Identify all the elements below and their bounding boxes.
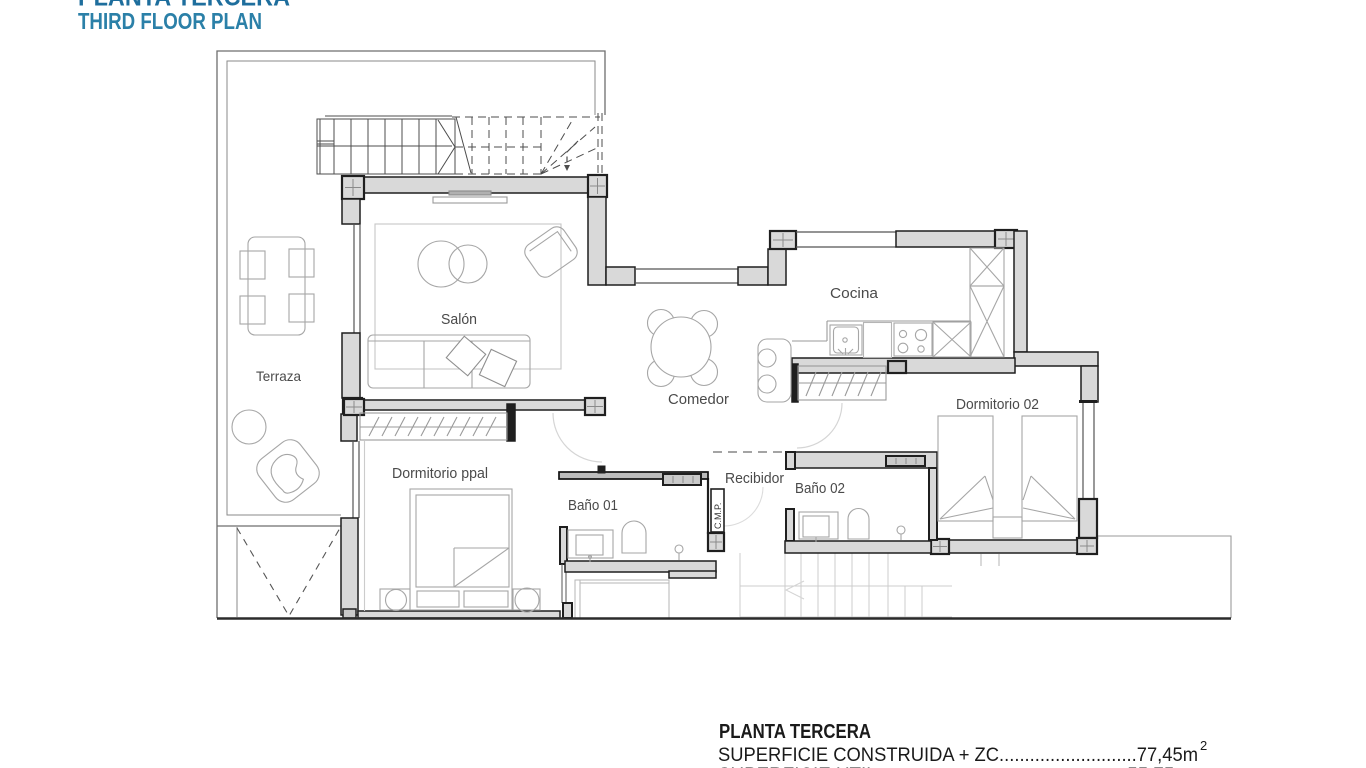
- svg-text:THIRD FLOOR PLAN: THIRD FLOOR PLAN: [78, 8, 262, 34]
- svg-text:2: 2: [1200, 738, 1207, 753]
- svg-text:Dormitorio 02: Dormitorio 02: [956, 396, 1039, 413]
- svg-text:C.M.P.: C.M.P.: [713, 503, 723, 529]
- svg-text:Baño 01: Baño 01: [568, 498, 618, 514]
- svg-text:SUPERFICIE CONSTRUIDA + ZC....: SUPERFICIE CONSTRUIDA + ZC..............…: [718, 744, 1198, 766]
- svg-text:Dormitorio ppal: Dormitorio ppal: [392, 465, 488, 482]
- svg-text:Salón: Salón: [441, 312, 477, 328]
- svg-text:PLANTA TERCERA: PLANTA TERCERA: [719, 721, 871, 743]
- svg-text:Cocina: Cocina: [830, 285, 879, 302]
- svg-text:SUPERFICIE UTIL...............: SUPERFICIE UTIL.........................…: [718, 764, 1190, 768]
- svg-text:Recibidor: Recibidor: [725, 471, 784, 487]
- svg-text:Comedor: Comedor: [668, 391, 729, 408]
- svg-text:Baño 02: Baño 02: [795, 481, 845, 497]
- svg-text:Terraza: Terraza: [256, 368, 301, 384]
